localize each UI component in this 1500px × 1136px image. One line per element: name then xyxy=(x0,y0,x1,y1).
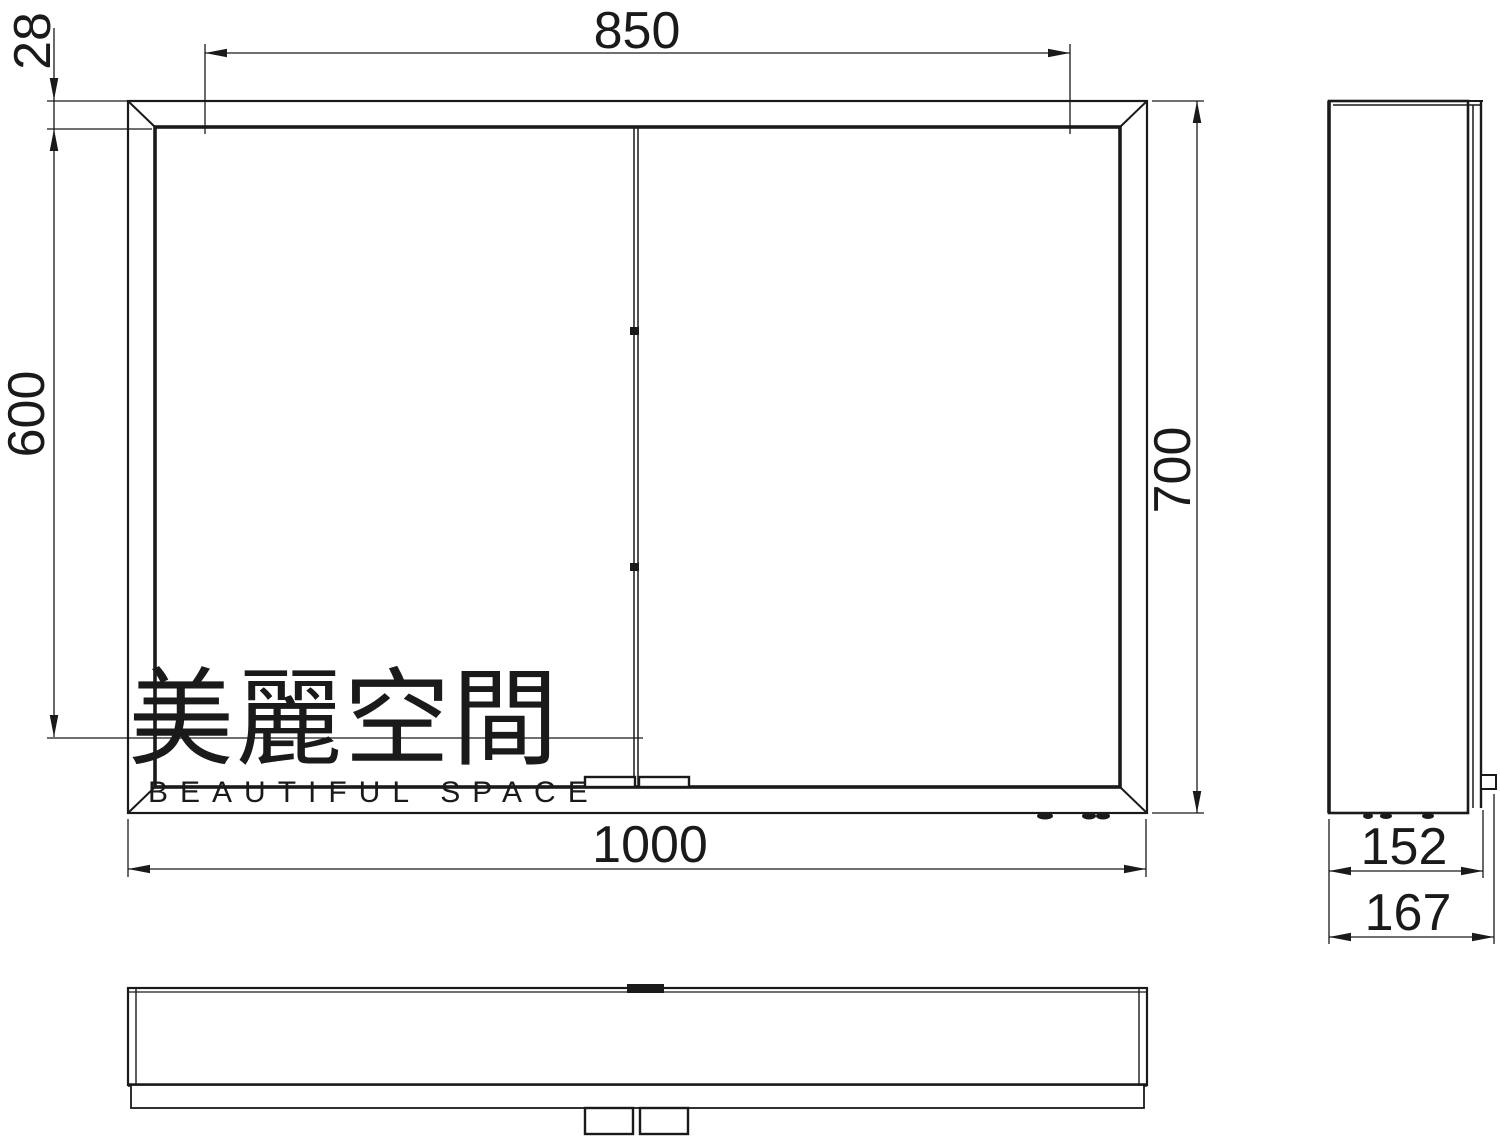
divider-hinge-mark-upper xyxy=(630,327,639,335)
dim-1000-arrow-right xyxy=(1124,865,1146,874)
technical-drawing: 美麗空間 BEAUTIFUL SPACE xyxy=(0,0,1500,1136)
top-body xyxy=(128,988,1147,1085)
watermark-cjk-text: 美麗空間 xyxy=(128,661,560,779)
bottom-edge-mark-1 xyxy=(1037,813,1053,820)
drawing-page: 美麗空間 BEAUTIFUL SPACE xyxy=(0,0,1500,1136)
top-left-handle xyxy=(585,1108,633,1134)
dim-700: 700 xyxy=(1144,101,1204,813)
top-view xyxy=(128,984,1147,1134)
left-door-handle xyxy=(585,777,635,787)
dim-167-label: 167 xyxy=(1365,884,1452,942)
dim-1000-arrow-left xyxy=(128,865,150,874)
dim-152-arrow-right xyxy=(1461,867,1483,876)
top-right-handle xyxy=(640,1108,688,1134)
top-divider-mark xyxy=(627,984,664,993)
dim-600-arrow-down xyxy=(50,715,59,737)
dim-152-label: 152 xyxy=(1361,818,1448,876)
dim-700-label: 700 xyxy=(1144,427,1202,514)
corner-diagonal-top-right xyxy=(1120,101,1147,127)
side-body xyxy=(1329,101,1468,813)
dim-850-arrow-left xyxy=(205,49,227,58)
dim-850: 850 xyxy=(205,2,1070,134)
top-door-strip xyxy=(131,1085,1144,1108)
divider-hinge-mark-lower xyxy=(630,563,639,571)
dim-700-arrow-up xyxy=(1193,101,1202,123)
dim-850-arrow-right xyxy=(1048,49,1070,58)
dim-28-arrow-down xyxy=(50,78,59,100)
dim-167-arrow-right xyxy=(1472,933,1494,942)
dim-600-label: 600 xyxy=(0,371,56,458)
dim-1000: 1000 xyxy=(128,816,1146,877)
right-door-handle xyxy=(639,777,689,787)
watermark-latin-text: BEAUTIFUL SPACE xyxy=(148,776,600,809)
dim-850-label: 850 xyxy=(594,2,681,60)
corner-diagonal-bottom-right xyxy=(1120,787,1147,813)
dim-152-arrow-left xyxy=(1329,867,1351,876)
dim-28-arrow-up xyxy=(50,129,59,151)
side-door-handle xyxy=(1481,775,1496,789)
dim-167-arrow-left xyxy=(1329,933,1351,942)
corner-diagonal-top-left xyxy=(128,101,155,127)
side-view xyxy=(1329,101,1496,819)
dim-700-arrow-down xyxy=(1193,791,1202,813)
dim-1000-label: 1000 xyxy=(592,816,708,874)
bottom-edge-mark-2 xyxy=(1082,813,1096,820)
dim-28-label: 28 xyxy=(4,12,62,70)
bottom-edge-mark-3 xyxy=(1096,813,1110,820)
